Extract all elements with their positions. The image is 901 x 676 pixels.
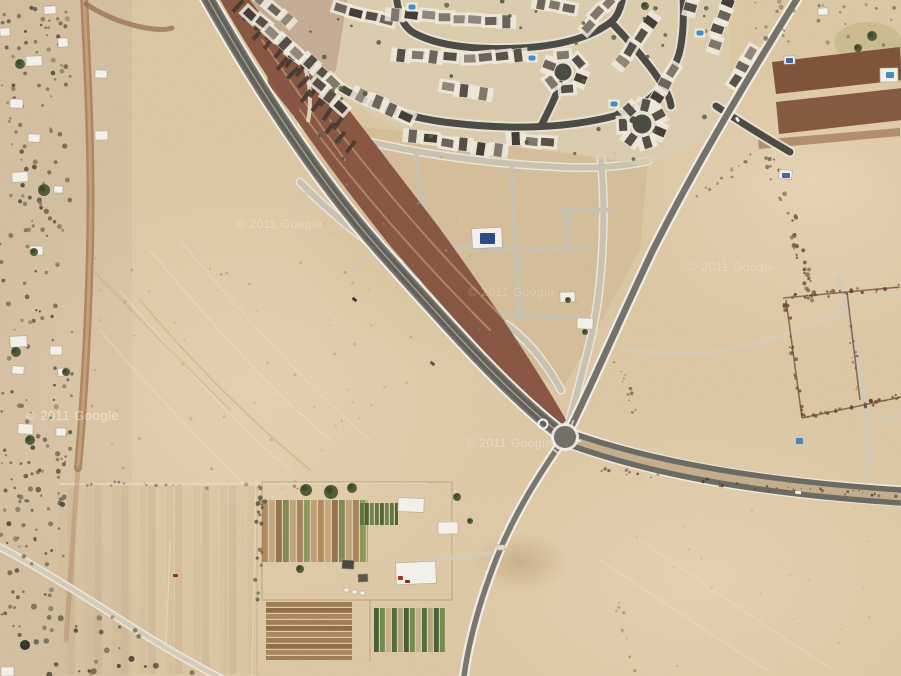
copyright-watermark: © 2011 Google — [468, 285, 555, 299]
copyright-watermark: © 2011 Google — [466, 436, 553, 450]
aerial-imagery: © 2011 Google© 2011 Google© 2011 Google©… — [0, 0, 901, 676]
grain-texture-overlay — [0, 0, 901, 676]
copyright-watermark: © 2011 Google — [688, 260, 775, 274]
copyright-watermark: © 2011 Google — [26, 408, 119, 423]
copyright-watermark: © 2011 Google — [236, 217, 323, 231]
satellite-map-canvas[interactable]: © 2011 Google© 2011 Google© 2011 Google©… — [0, 0, 901, 676]
